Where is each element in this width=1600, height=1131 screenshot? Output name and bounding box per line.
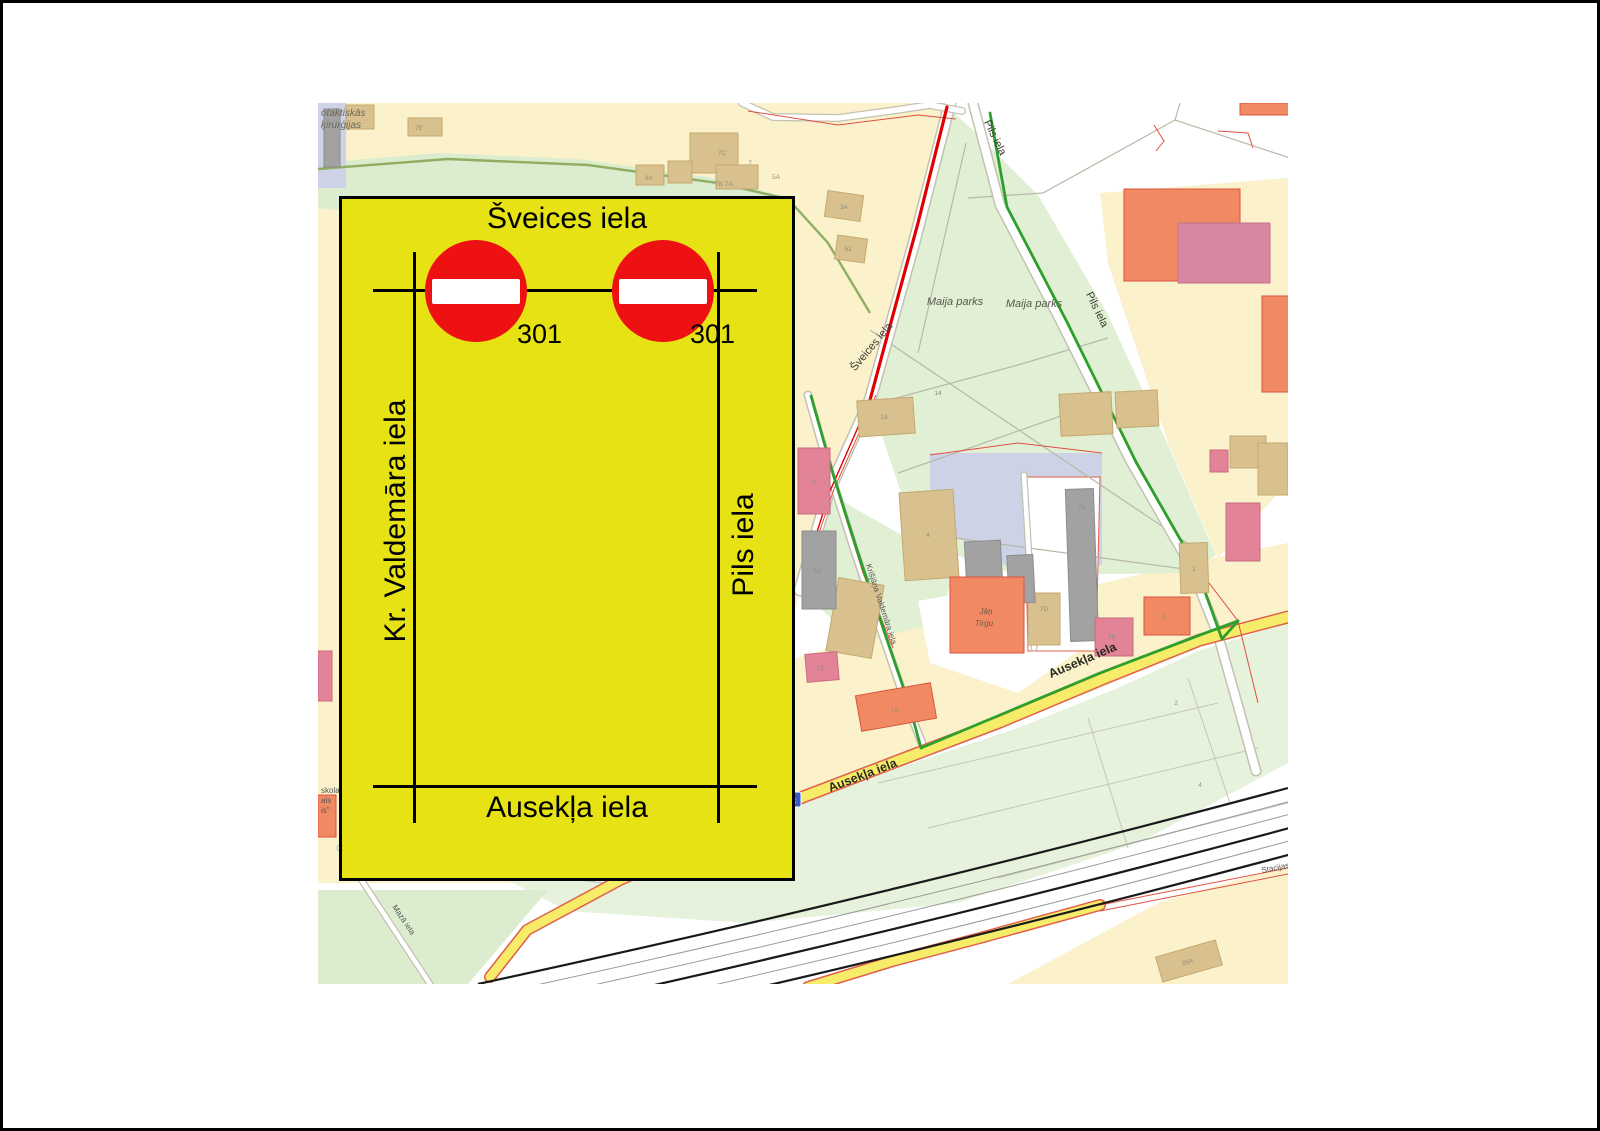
- house-number: 7D: [1040, 606, 1049, 613]
- house-number: 2: [1174, 700, 1178, 707]
- school-label-line2: ais: [321, 796, 331, 805]
- house-number: 4: [1198, 782, 1202, 789]
- school-label-line1: skola: [321, 786, 340, 795]
- park-label-1: Maija parks: [927, 296, 984, 308]
- house-number: 51: [844, 246, 852, 253]
- house-number: 7E: [415, 125, 424, 132]
- house-number: 4: [926, 532, 930, 539]
- diagram-bottom-street: Ausekļa iela: [342, 791, 792, 825]
- sign-code-1: 301: [517, 321, 562, 348]
- house-number: 3A: [840, 204, 849, 211]
- house-number: 7B 7A: [715, 181, 733, 188]
- clinic-label-line2: ķirurģijas: [321, 118, 361, 131]
- house-number: 13: [880, 414, 888, 421]
- diagram-line-valdemara: [413, 252, 416, 823]
- house-number: 7C: [718, 150, 727, 157]
- park-label-2: Maija parks: [1006, 298, 1063, 310]
- market-label-line2: Tirgu: [975, 619, 994, 628]
- house-number: 5A: [772, 174, 781, 181]
- diagram-title-street: Šveices iela: [342, 202, 792, 236]
- house-number: 7: [748, 160, 752, 167]
- house-number: 14: [934, 390, 942, 397]
- house-number: 3A: [813, 568, 822, 575]
- diagram-left-street: Kr. Valdemāra iela: [379, 400, 413, 643]
- school-label-line3: is": [321, 806, 330, 815]
- house-number: 9: [1162, 614, 1166, 621]
- no-entry-sign-1: [425, 240, 527, 342]
- no-entry-bar-icon: [432, 279, 520, 304]
- house-number: 9A: [645, 175, 654, 182]
- house-number: 7A: [1078, 504, 1087, 511]
- diagram-line-ausekla: [373, 785, 757, 788]
- house-number: 1: [1192, 566, 1196, 573]
- house-number: 7B: [1108, 634, 1116, 641]
- pink-inner-building: [1178, 223, 1270, 283]
- clinic-label-line1: otaktiskās: [321, 108, 365, 119]
- diagram-right-street: Pils iela: [727, 493, 761, 596]
- house-number: 1: [812, 478, 816, 485]
- closure-diagram-box: Šveices iela 301 301 Kr. Valdemāra iela …: [339, 196, 795, 881]
- house-number: 1C: [817, 665, 826, 672]
- no-entry-bar-icon: [619, 279, 707, 304]
- market-label-line1: Jāņ: [979, 607, 993, 616]
- sign-code-2: 301: [690, 321, 735, 348]
